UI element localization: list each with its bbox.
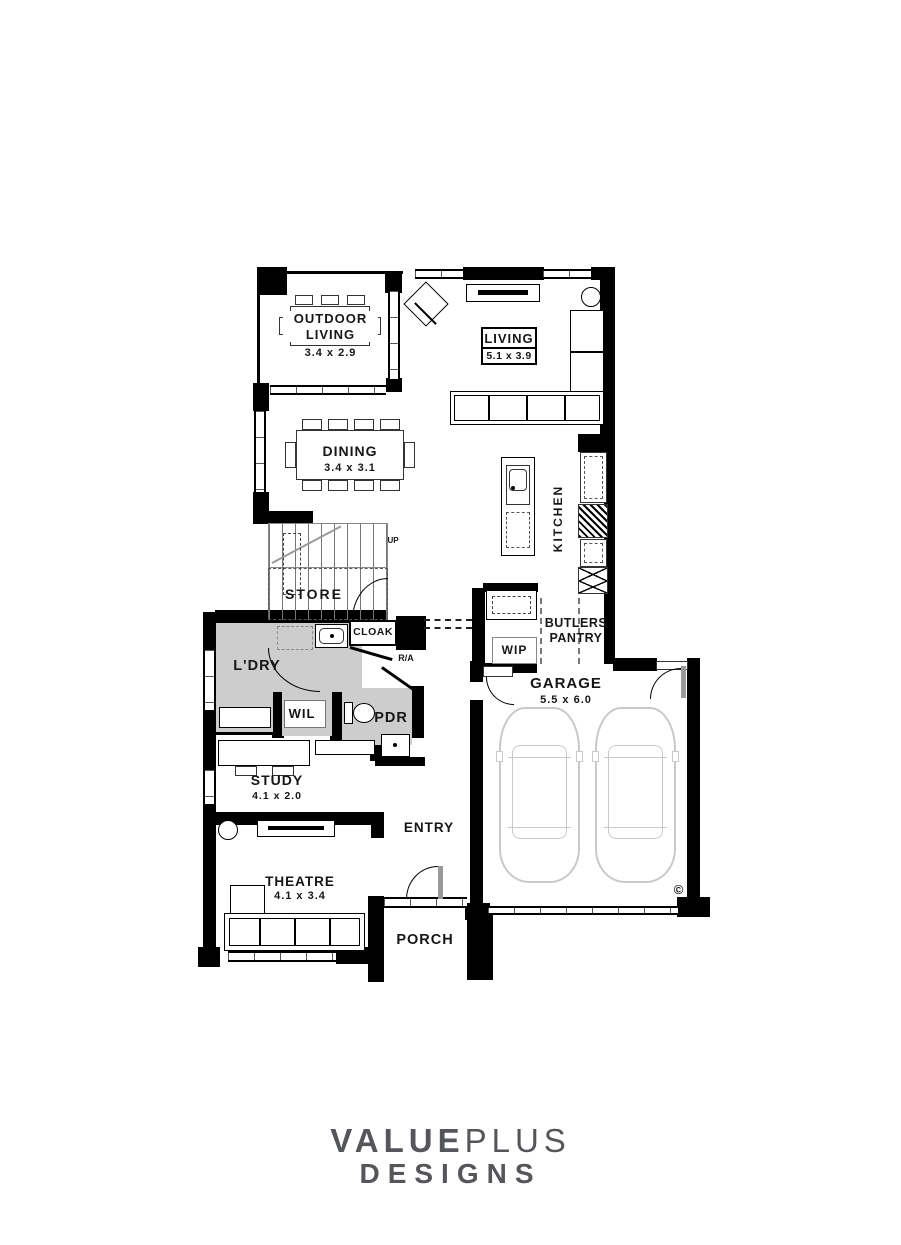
theatre-tv xyxy=(268,826,324,830)
chair xyxy=(380,480,400,491)
overhead-dashed-line xyxy=(424,627,472,629)
chair xyxy=(285,442,296,468)
outdoor-living-dims: 3.4 x 2.9 xyxy=(283,347,378,360)
island-dashed xyxy=(506,512,530,548)
brand-designs: DESIGNS xyxy=(0,1158,901,1190)
wall xyxy=(253,383,269,411)
wall xyxy=(203,612,216,650)
fridge-dashed xyxy=(584,456,603,499)
wall xyxy=(253,492,269,518)
wip-label: WIP xyxy=(492,643,537,657)
pdr-label: PDR xyxy=(368,710,414,727)
car-mirror xyxy=(496,751,503,762)
tv xyxy=(478,290,528,295)
wall xyxy=(368,896,384,982)
chair xyxy=(321,295,339,305)
chair xyxy=(328,480,348,491)
stairs-up-label: UP xyxy=(383,536,403,546)
garage-door xyxy=(488,906,678,915)
chair xyxy=(295,295,313,305)
wall xyxy=(386,378,402,392)
pdr-basin-tap xyxy=(393,743,397,747)
wall xyxy=(371,812,384,838)
wall xyxy=(470,700,483,906)
chair xyxy=(347,295,365,305)
store-label: STORE xyxy=(283,586,345,603)
chair xyxy=(404,442,415,468)
brand-plus: PLUS xyxy=(465,1122,571,1159)
car-rear-window xyxy=(604,827,667,828)
wall xyxy=(396,616,426,650)
shelf-x-mark xyxy=(579,581,607,594)
car-roof xyxy=(512,745,567,839)
pantry-cabinet xyxy=(578,567,608,594)
car xyxy=(595,707,676,883)
car-mirror xyxy=(592,751,599,762)
floor-plan-page: UP STORE R/A CLOAK WIP BUTLERS PANTRY KI… xyxy=(0,0,901,1245)
study-cabinet xyxy=(315,740,375,755)
butlers-pantry-label: BUTLERS PANTRY xyxy=(541,616,611,646)
sofa-horizontal xyxy=(450,391,604,425)
shelf-x-mark xyxy=(579,568,607,581)
dining-label: DINING xyxy=(305,443,395,460)
laundry-tap xyxy=(330,634,334,638)
wall xyxy=(203,710,216,770)
entry-label: ENTRY xyxy=(402,820,456,836)
cooktop xyxy=(578,504,608,538)
chair xyxy=(380,419,400,430)
study-label: STUDY xyxy=(246,772,308,789)
chair xyxy=(354,419,374,430)
garage-side-door-arc xyxy=(650,668,681,699)
wall xyxy=(578,434,615,452)
car xyxy=(499,707,580,883)
window xyxy=(388,291,400,379)
wall xyxy=(203,804,216,949)
chair xyxy=(302,480,322,491)
car-windshield xyxy=(508,757,571,758)
brand-value: VALUE xyxy=(330,1122,464,1159)
window xyxy=(415,269,463,279)
garage-dims: 5.5 x 6.0 xyxy=(529,694,603,707)
garage-door-arc xyxy=(486,677,514,705)
laundry-label: L'DRY xyxy=(226,658,288,675)
window xyxy=(203,770,216,804)
laundry-appliance-dashed xyxy=(277,626,313,650)
front-door-arc xyxy=(406,866,438,899)
living-label-box: LIVING 5.1 x 3.9 xyxy=(481,327,537,365)
dining-dims: 3.4 x 3.1 xyxy=(305,462,395,475)
wall xyxy=(687,658,700,910)
chair xyxy=(354,480,374,491)
garage-label: GARAGE xyxy=(529,675,603,693)
cloak-label: CLOAK xyxy=(349,626,397,639)
wall xyxy=(472,588,485,672)
laundry-bench xyxy=(219,707,271,728)
wall xyxy=(198,947,220,967)
living-dims: 5.1 x 3.9 xyxy=(483,350,535,363)
island-tap xyxy=(511,486,515,490)
return-air-label: R/A xyxy=(388,653,424,664)
wil-label: WIL xyxy=(280,706,324,722)
window xyxy=(228,951,336,962)
theatre-dims: 4.1 x 3.4 xyxy=(260,890,340,903)
wall xyxy=(375,757,425,766)
theatre-label: THEATRE xyxy=(260,874,340,890)
window xyxy=(203,650,216,710)
brand-logo: VALUEPLUS DESIGNS xyxy=(0,1122,901,1190)
toilet-cistern xyxy=(344,702,353,724)
living-label-divider xyxy=(483,347,535,349)
theatre-side-table xyxy=(218,820,238,840)
wall xyxy=(677,897,710,917)
car-rear-window xyxy=(508,827,571,828)
wall xyxy=(385,271,402,293)
sliding-door xyxy=(270,385,386,395)
study-dims: 4.1 x 2.0 xyxy=(246,790,308,803)
wall xyxy=(467,908,493,980)
study-desk xyxy=(218,740,310,766)
brand-logo-line1: VALUEPLUS xyxy=(0,1122,901,1160)
garage-door-frame xyxy=(483,666,513,677)
butlers-bench-dashed xyxy=(492,596,531,614)
theatre-sofa xyxy=(224,913,365,951)
porch-label: PORCH xyxy=(393,932,457,949)
front-door-leaf xyxy=(438,866,443,899)
car-mirror xyxy=(672,751,679,762)
door-leaf xyxy=(681,666,686,698)
chair xyxy=(302,419,322,430)
wall xyxy=(613,658,657,671)
window xyxy=(254,411,266,492)
car-mirror xyxy=(576,751,583,762)
kitchen-label: KITCHEN xyxy=(551,490,565,552)
corner-chair xyxy=(403,281,448,326)
wall xyxy=(463,267,544,280)
copyright-mark: © xyxy=(670,882,688,898)
living-label: LIVING xyxy=(483,331,535,347)
car-roof xyxy=(608,745,663,839)
window xyxy=(543,269,591,279)
side-table xyxy=(581,287,601,307)
car-windshield xyxy=(604,757,667,758)
outdoor-living-label: OUTDOOR LIVING xyxy=(283,311,378,342)
chair xyxy=(328,419,348,430)
wall xyxy=(257,271,260,385)
overhead-dashed-line xyxy=(424,619,472,621)
kitchen-cabinet-dashed xyxy=(584,543,603,563)
wall xyxy=(257,267,287,295)
sofa-vertical xyxy=(570,310,604,392)
